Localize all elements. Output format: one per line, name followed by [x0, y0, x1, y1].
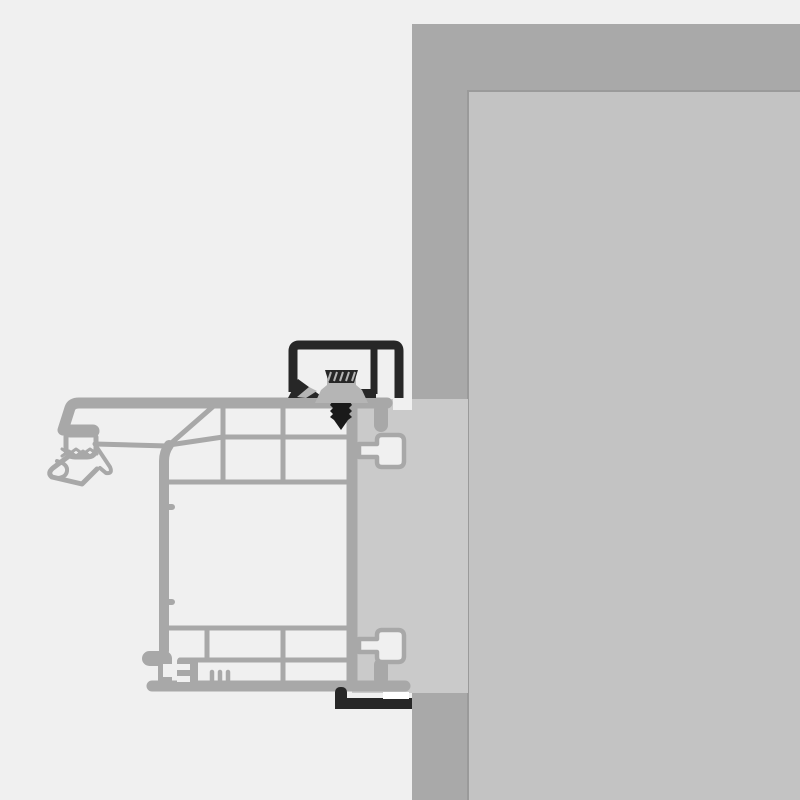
- end-cap-notch: [163, 664, 174, 677]
- bottom-bracket-highlight: [383, 692, 409, 699]
- upper-hook-lug: [374, 403, 388, 432]
- main-chamber-left-wall: [164, 445, 169, 651]
- end-cap-slit-2: [177, 676, 190, 682]
- interior-wall-surface: [468, 90, 800, 800]
- illustration-stage: [0, 0, 800, 800]
- end-cap-slit-1: [177, 664, 190, 670]
- inner-flange-line: [95, 444, 168, 446]
- bottom-bracket-bar: [335, 698, 412, 709]
- cross-section-drawing: [0, 0, 800, 800]
- frame-wall-gap: [393, 399, 412, 410]
